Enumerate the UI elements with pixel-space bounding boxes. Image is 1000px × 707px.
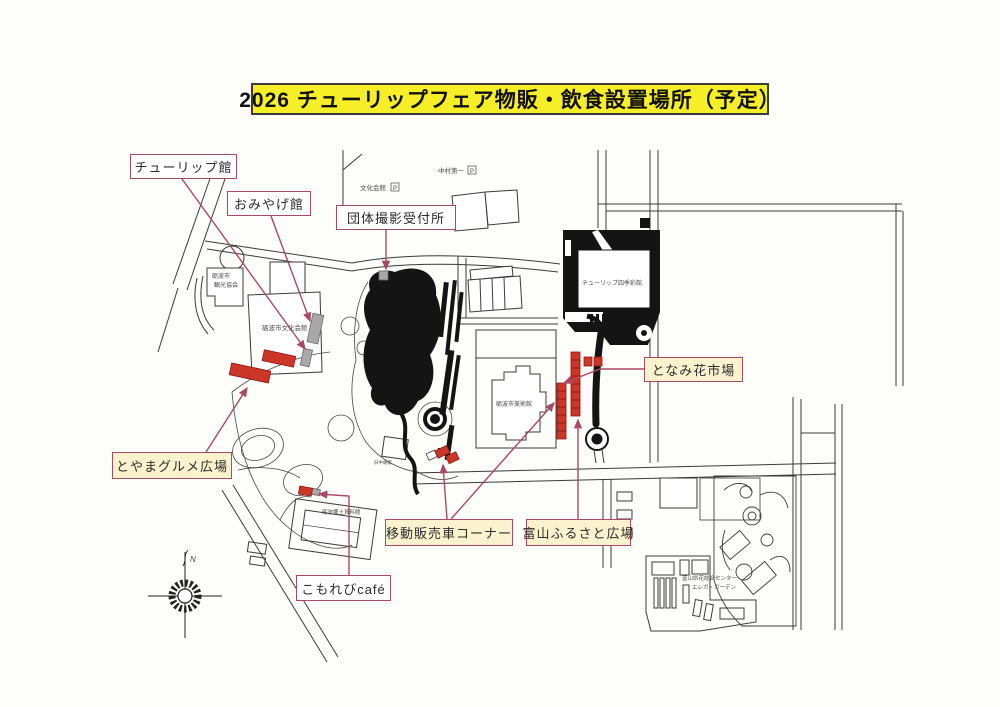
group-photo-site [379, 271, 388, 280]
callout-food-truck-corner: 移動販売車コーナー [385, 519, 513, 546]
kyodo-museum-label: 砺波郷土資料館 [322, 508, 361, 516]
leader-food-truck-1 [443, 465, 447, 519]
callout-group-photo-desk: 団体撮影受付所 [336, 205, 456, 230]
flowerbed-stripes [438, 280, 464, 460]
flower-center-label-1: 富山県花総合センター [682, 574, 737, 582]
art-museum-label: 砺波市美術館 [496, 400, 532, 408]
bunka-kaikan-parking-label: 文化会館 [360, 183, 387, 192]
buildings [207, 190, 760, 631]
komorebi-cafe-site [298, 486, 312, 496]
flower-center-label-2: エレガ・ガーデン [692, 583, 737, 591]
kanko-kyokai-label-1: 砺波市 [212, 272, 230, 280]
stream [400, 412, 418, 494]
nakajima-house-label: 旧中嶋家 [374, 459, 392, 466]
pond [364, 269, 441, 415]
callout-tonami-flower-market: となみ花市場 [644, 357, 743, 382]
callout-toyama-gourmet-plaza: とやまグルメ広場 [112, 452, 232, 479]
compass-rose: N [148, 550, 222, 638]
food-truck-stalls [426, 445, 459, 463]
scanned-map-page: N 文化会館 P 中村第一 P 砺波市 観光協会 砺波市文化会館 チューリップ四… [0, 0, 1000, 707]
elega-garden [714, 476, 796, 626]
parking-p-icon: P [470, 169, 474, 175]
parking-p-icon: P [393, 186, 397, 192]
leader-gourmet-plaza [206, 388, 247, 452]
callout-komorebi-cafe: こもれびcafé [296, 575, 391, 601]
callout-tulip-hall: チューリップ館 [130, 154, 237, 179]
page-title: 2026 チューリップフェア物販・飲食設置場所（予定） [251, 83, 769, 115]
shikisaikan-label: チューリップ四季彩館 [582, 279, 642, 287]
kanko-kyokai-label-2: 観光協会 [214, 281, 238, 289]
market-stall-column-right [571, 352, 580, 416]
callout-souvenir-hall: おみやげ館 [227, 191, 311, 216]
market-stall-column-left [557, 383, 566, 439]
compass-north-label: N [190, 555, 196, 564]
nakamura-parking-label: 中村第一 [438, 166, 465, 175]
callout-toyama-furusato-plaza: 富山ふるさと広場 [526, 519, 631, 546]
market-road [596, 333, 601, 424]
bunka-kaikan-label: 砺波市文化会館 [262, 323, 308, 332]
